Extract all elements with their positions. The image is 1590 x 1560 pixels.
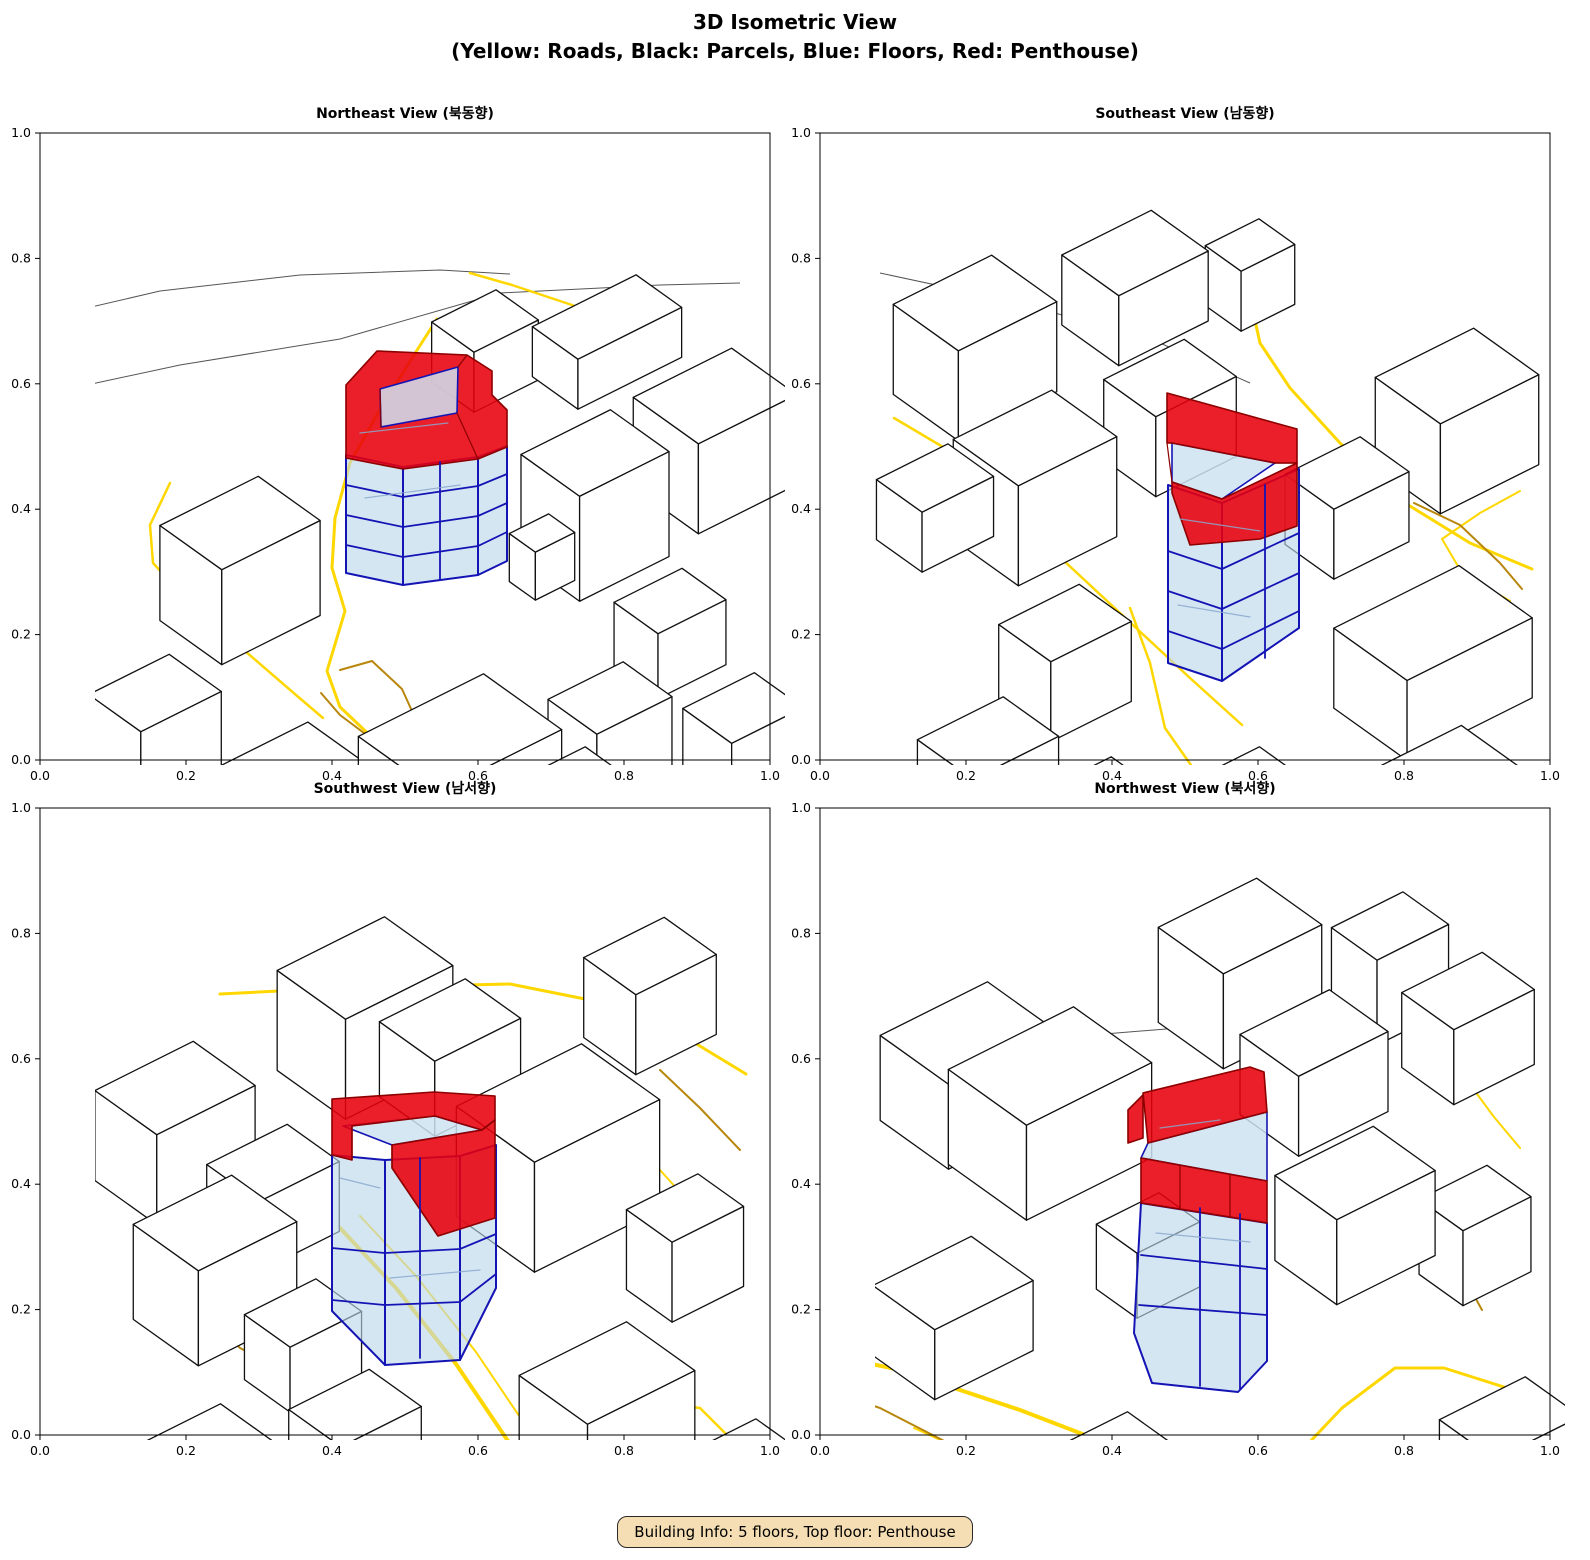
x-tick-label: 0.8 (614, 768, 634, 783)
y-tick-label: 0.8 (11, 250, 31, 265)
building-face (1089, 1461, 1196, 1503)
y-tick-label: 0.4 (791, 501, 811, 516)
road-line (820, 1428, 910, 1498)
central-building (1128, 1067, 1267, 1392)
building-face (1196, 1486, 1356, 1503)
figure-canvas: { "figure": { "title_line1": "3D Isometr… (0, 0, 1590, 1560)
subplot-northwest: 0.00.00.20.20.40.40.60.60.80.81.01.0 (765, 803, 1565, 1503)
x-tick-label: 1.0 (1540, 1443, 1560, 1458)
x-tick-label: 0.4 (322, 768, 342, 783)
figure-title: 3D Isometric View (Yellow: Roads, Black:… (0, 8, 1590, 66)
x-tick-label: 0.8 (1394, 768, 1414, 783)
x-tick-label: 0.0 (30, 768, 50, 783)
x-tick-label: 0.6 (1248, 1443, 1268, 1458)
building-face (320, 1471, 480, 1503)
y-tick-label: 1.0 (791, 803, 811, 815)
x-tick-label: 0.8 (1394, 1443, 1414, 1458)
y-tick-label: 0.2 (11, 1302, 31, 1317)
infobox-container: Building Info: 5 floors, Top floor: Pent… (0, 1516, 1590, 1548)
y-tick-label: 0.6 (791, 376, 811, 391)
building-face (684, 1455, 730, 1503)
y-tick-label: 0.8 (791, 925, 811, 940)
central-building (346, 351, 507, 585)
y-tick-label: 0.6 (791, 1051, 811, 1066)
building-face (173, 1460, 298, 1503)
x-tick-label: 0.2 (176, 1443, 196, 1458)
central-building (1167, 393, 1299, 681)
building-face (873, 1501, 946, 1503)
central-floor-face (346, 455, 403, 585)
x-tick-label: 0.6 (1248, 768, 1268, 783)
y-tick-label: 0.8 (11, 925, 31, 940)
building-face (947, 1495, 1063, 1503)
x-tick-label: 0.4 (322, 1443, 342, 1458)
x-tick-label: 0.6 (468, 1443, 488, 1458)
y-tick-label: 1.0 (11, 128, 31, 140)
y-tick-label: 1.0 (11, 803, 31, 815)
subplot-title-southeast: Southeast View (남동향) (820, 103, 1550, 123)
y-tick-label: 1.0 (791, 128, 811, 140)
building (1196, 1486, 1356, 1503)
subplot-northeast: 0.00.00.20.20.40.40.60.60.80.81.01.0 (0, 128, 785, 828)
y-tick-label: 0.6 (11, 376, 31, 391)
x-tick-label: 0.0 (30, 1443, 50, 1458)
subplot-southeast: 0.00.00.20.20.40.40.60.60.80.81.01.0 (765, 128, 1565, 828)
building-face (1020, 1465, 1088, 1503)
subplot-title-northeast: Northeast View (북동향) (40, 103, 770, 123)
x-tick-label: 0.2 (956, 1443, 976, 1458)
y-tick-label: 0.4 (11, 1176, 31, 1191)
y-tick-label: 0.0 (791, 1427, 811, 1442)
y-tick-label: 0.0 (791, 752, 811, 767)
building-face (95, 1466, 173, 1503)
x-tick-label: 1.0 (1540, 768, 1560, 783)
x-tick-label: 0.8 (614, 1443, 634, 1458)
y-tick-label: 0.0 (11, 1427, 31, 1442)
y-tick-label: 0.2 (11, 627, 31, 642)
x-tick-label: 0.0 (810, 768, 830, 783)
figure-title-line1: 3D Isometric View (0, 8, 1590, 37)
x-tick-label: 0.6 (468, 768, 488, 783)
y-tick-label: 0.8 (791, 250, 811, 265)
building (320, 1471, 480, 1503)
x-tick-label: 0.0 (810, 1443, 830, 1458)
central-floor-face (478, 446, 507, 575)
subplot-southwest: 0.00.00.20.20.40.40.60.60.80.81.01.0 (0, 803, 785, 1503)
y-tick-label: 0.4 (791, 1176, 811, 1191)
y-tick-label: 0.6 (11, 1051, 31, 1066)
y-tick-label: 0.2 (791, 627, 811, 642)
x-tick-label: 0.4 (1102, 1443, 1122, 1458)
figure-title-line2: (Yellow: Roads, Black: Parcels, Blue: Fl… (0, 37, 1590, 66)
x-tick-label: 0.4 (1102, 768, 1122, 783)
x-tick-label: 0.2 (176, 768, 196, 783)
y-tick-label: 0.0 (11, 752, 31, 767)
x-tick-label: 0.2 (956, 768, 976, 783)
y-tick-label: 0.2 (791, 1302, 811, 1317)
y-tick-label: 0.4 (11, 501, 31, 516)
building-info-box: Building Info: 5 floors, Top floor: Pent… (617, 1516, 972, 1548)
